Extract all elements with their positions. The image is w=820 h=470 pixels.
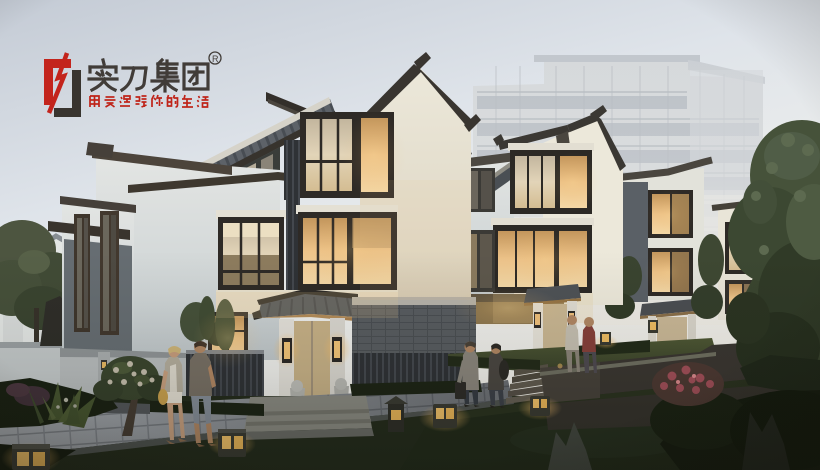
svg-text:R: R	[212, 54, 219, 64]
